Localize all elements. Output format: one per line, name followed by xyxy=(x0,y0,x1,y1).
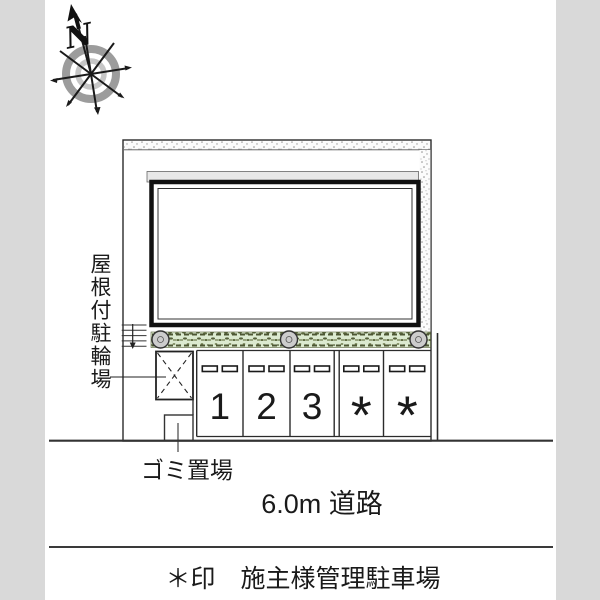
bush xyxy=(281,331,298,348)
stop-dash xyxy=(410,366,425,372)
north-label: N xyxy=(61,16,98,56)
garbage-box-outline xyxy=(165,415,194,441)
boundary-stipple-top xyxy=(124,142,430,150)
stop-dash xyxy=(344,366,359,372)
bush xyxy=(410,331,427,348)
legend-note: ＊印 施主様管理駐車場 xyxy=(148,559,458,595)
parking-space-label-5: * xyxy=(397,386,418,446)
parking-area: 1 2 3 * * xyxy=(197,351,431,446)
parking-space-label-3: 3 xyxy=(302,386,323,427)
bicycle-parking-box xyxy=(156,352,193,400)
arrowhead-south xyxy=(94,107,101,115)
stop-dash xyxy=(315,366,330,372)
road-label: 6.0m 道路 xyxy=(222,482,422,521)
stop-dash xyxy=(364,366,379,372)
building-outline xyxy=(152,182,419,325)
stop-dash xyxy=(249,366,264,372)
compass-rose: N xyxy=(50,4,132,115)
stop-dash xyxy=(202,366,217,372)
parking-space-label-1: 1 xyxy=(210,386,231,427)
arrowhead-west xyxy=(50,78,58,83)
bush xyxy=(152,331,169,348)
stop-dash xyxy=(390,366,405,372)
parking-space-label-2: 2 xyxy=(256,386,277,427)
bicycle-parking-label: 屋根付駐輪場 xyxy=(85,253,111,403)
arrowhead-east xyxy=(125,66,133,71)
site-plan-page: N xyxy=(0,0,600,600)
parking-stop-dashes xyxy=(202,366,424,372)
stop-dash xyxy=(222,366,237,372)
boundary-stipple-right xyxy=(420,150,431,333)
parking-space-label-4: * xyxy=(351,386,372,446)
garbage-area-label: ゴミ置場 xyxy=(139,451,235,485)
stop-dash xyxy=(269,366,284,372)
stop-dash xyxy=(295,366,310,372)
